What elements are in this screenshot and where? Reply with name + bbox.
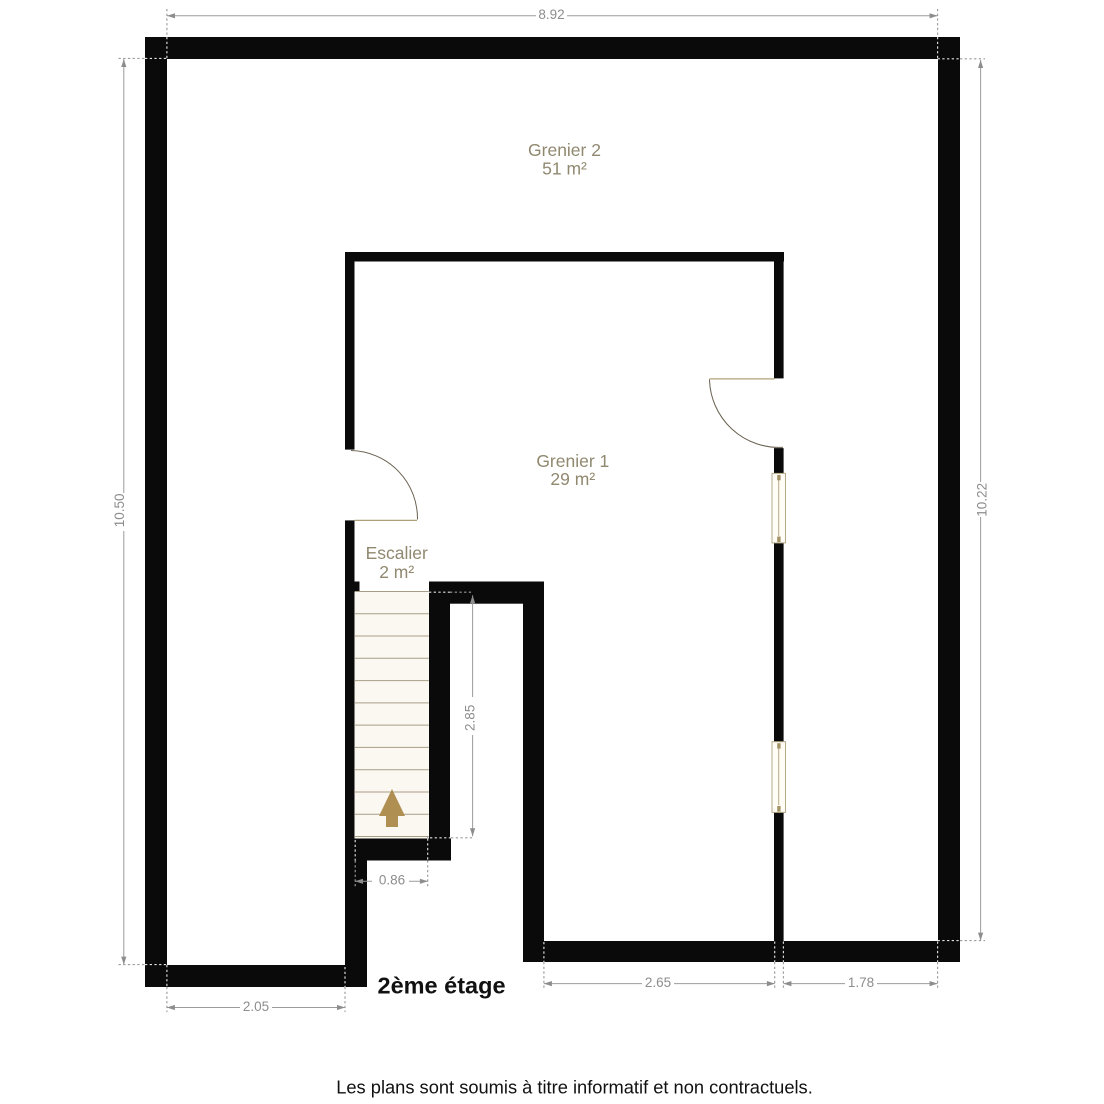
- svg-text:0.86: 0.86: [379, 873, 405, 888]
- svg-text:10.22: 10.22: [974, 483, 989, 517]
- svg-text:2ème étage: 2ème étage: [378, 973, 506, 999]
- svg-text:29 m²: 29 m²: [550, 469, 595, 489]
- svg-text:51 m²: 51 m²: [542, 159, 587, 179]
- svg-text:2.85: 2.85: [462, 705, 477, 731]
- svg-text:1.78: 1.78: [848, 975, 874, 990]
- svg-text:8.92: 8.92: [538, 7, 564, 22]
- svg-text:Escalier: Escalier: [366, 543, 428, 563]
- svg-text:Les plans sont soumis à titre: Les plans sont soumis à titre informatif…: [336, 1077, 813, 1098]
- svg-text:2 m²: 2 m²: [379, 562, 414, 582]
- svg-text:Grenier 2: Grenier 2: [528, 140, 601, 160]
- svg-text:2.65: 2.65: [645, 975, 671, 990]
- svg-text:2.05: 2.05: [243, 999, 269, 1014]
- svg-text:10.50: 10.50: [112, 493, 127, 527]
